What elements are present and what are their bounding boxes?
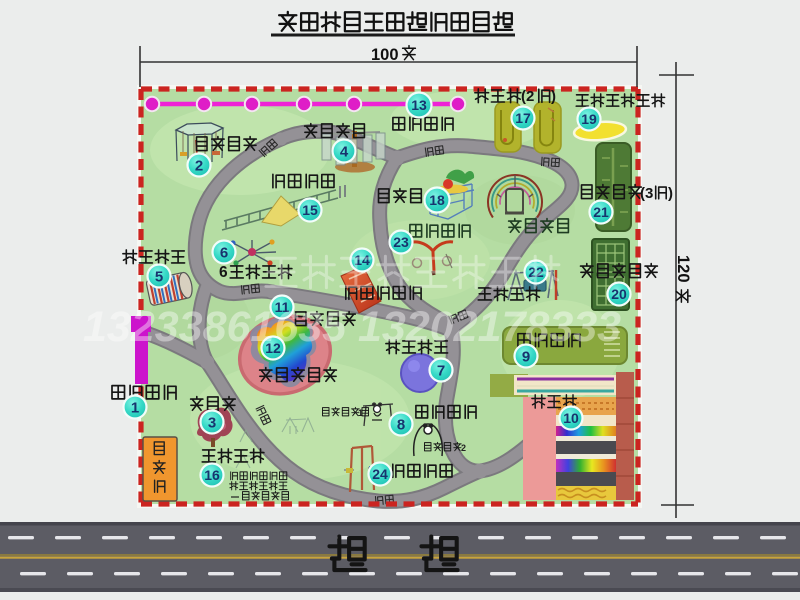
svg-text:19: 19 — [581, 111, 597, 127]
svg-text:): ) — [668, 185, 673, 202]
svg-text:21: 21 — [593, 204, 609, 220]
svg-text:6: 6 — [220, 244, 228, 261]
svg-text:(2: (2 — [521, 88, 534, 105]
svg-text:): ) — [551, 88, 556, 105]
svg-text:10: 10 — [563, 410, 579, 426]
svg-text:13233861635 13202178333: 13233861635 13202178333 — [83, 303, 621, 351]
svg-text:6: 6 — [219, 264, 228, 281]
svg-text:18: 18 — [429, 192, 445, 208]
svg-text:1: 1 — [358, 408, 363, 418]
svg-text:23: 23 — [393, 234, 409, 250]
svg-text:(3: (3 — [640, 185, 653, 202]
svg-text:100: 100 — [371, 46, 399, 64]
svg-text:15: 15 — [302, 202, 318, 218]
svg-text:8: 8 — [397, 416, 405, 433]
svg-text:3: 3 — [208, 414, 216, 431]
svg-text:120: 120 — [674, 255, 692, 283]
svg-text:2: 2 — [461, 443, 466, 453]
svg-text:13: 13 — [411, 97, 427, 113]
svg-text:7: 7 — [437, 362, 445, 379]
svg-text:24: 24 — [372, 466, 388, 482]
svg-text:4: 4 — [340, 143, 349, 160]
svg-text:1: 1 — [131, 399, 139, 416]
svg-text:5: 5 — [155, 268, 163, 285]
svg-text:17: 17 — [515, 110, 531, 126]
svg-text:20: 20 — [611, 286, 627, 302]
svg-text:16: 16 — [204, 467, 220, 483]
svg-text:2: 2 — [195, 157, 203, 174]
